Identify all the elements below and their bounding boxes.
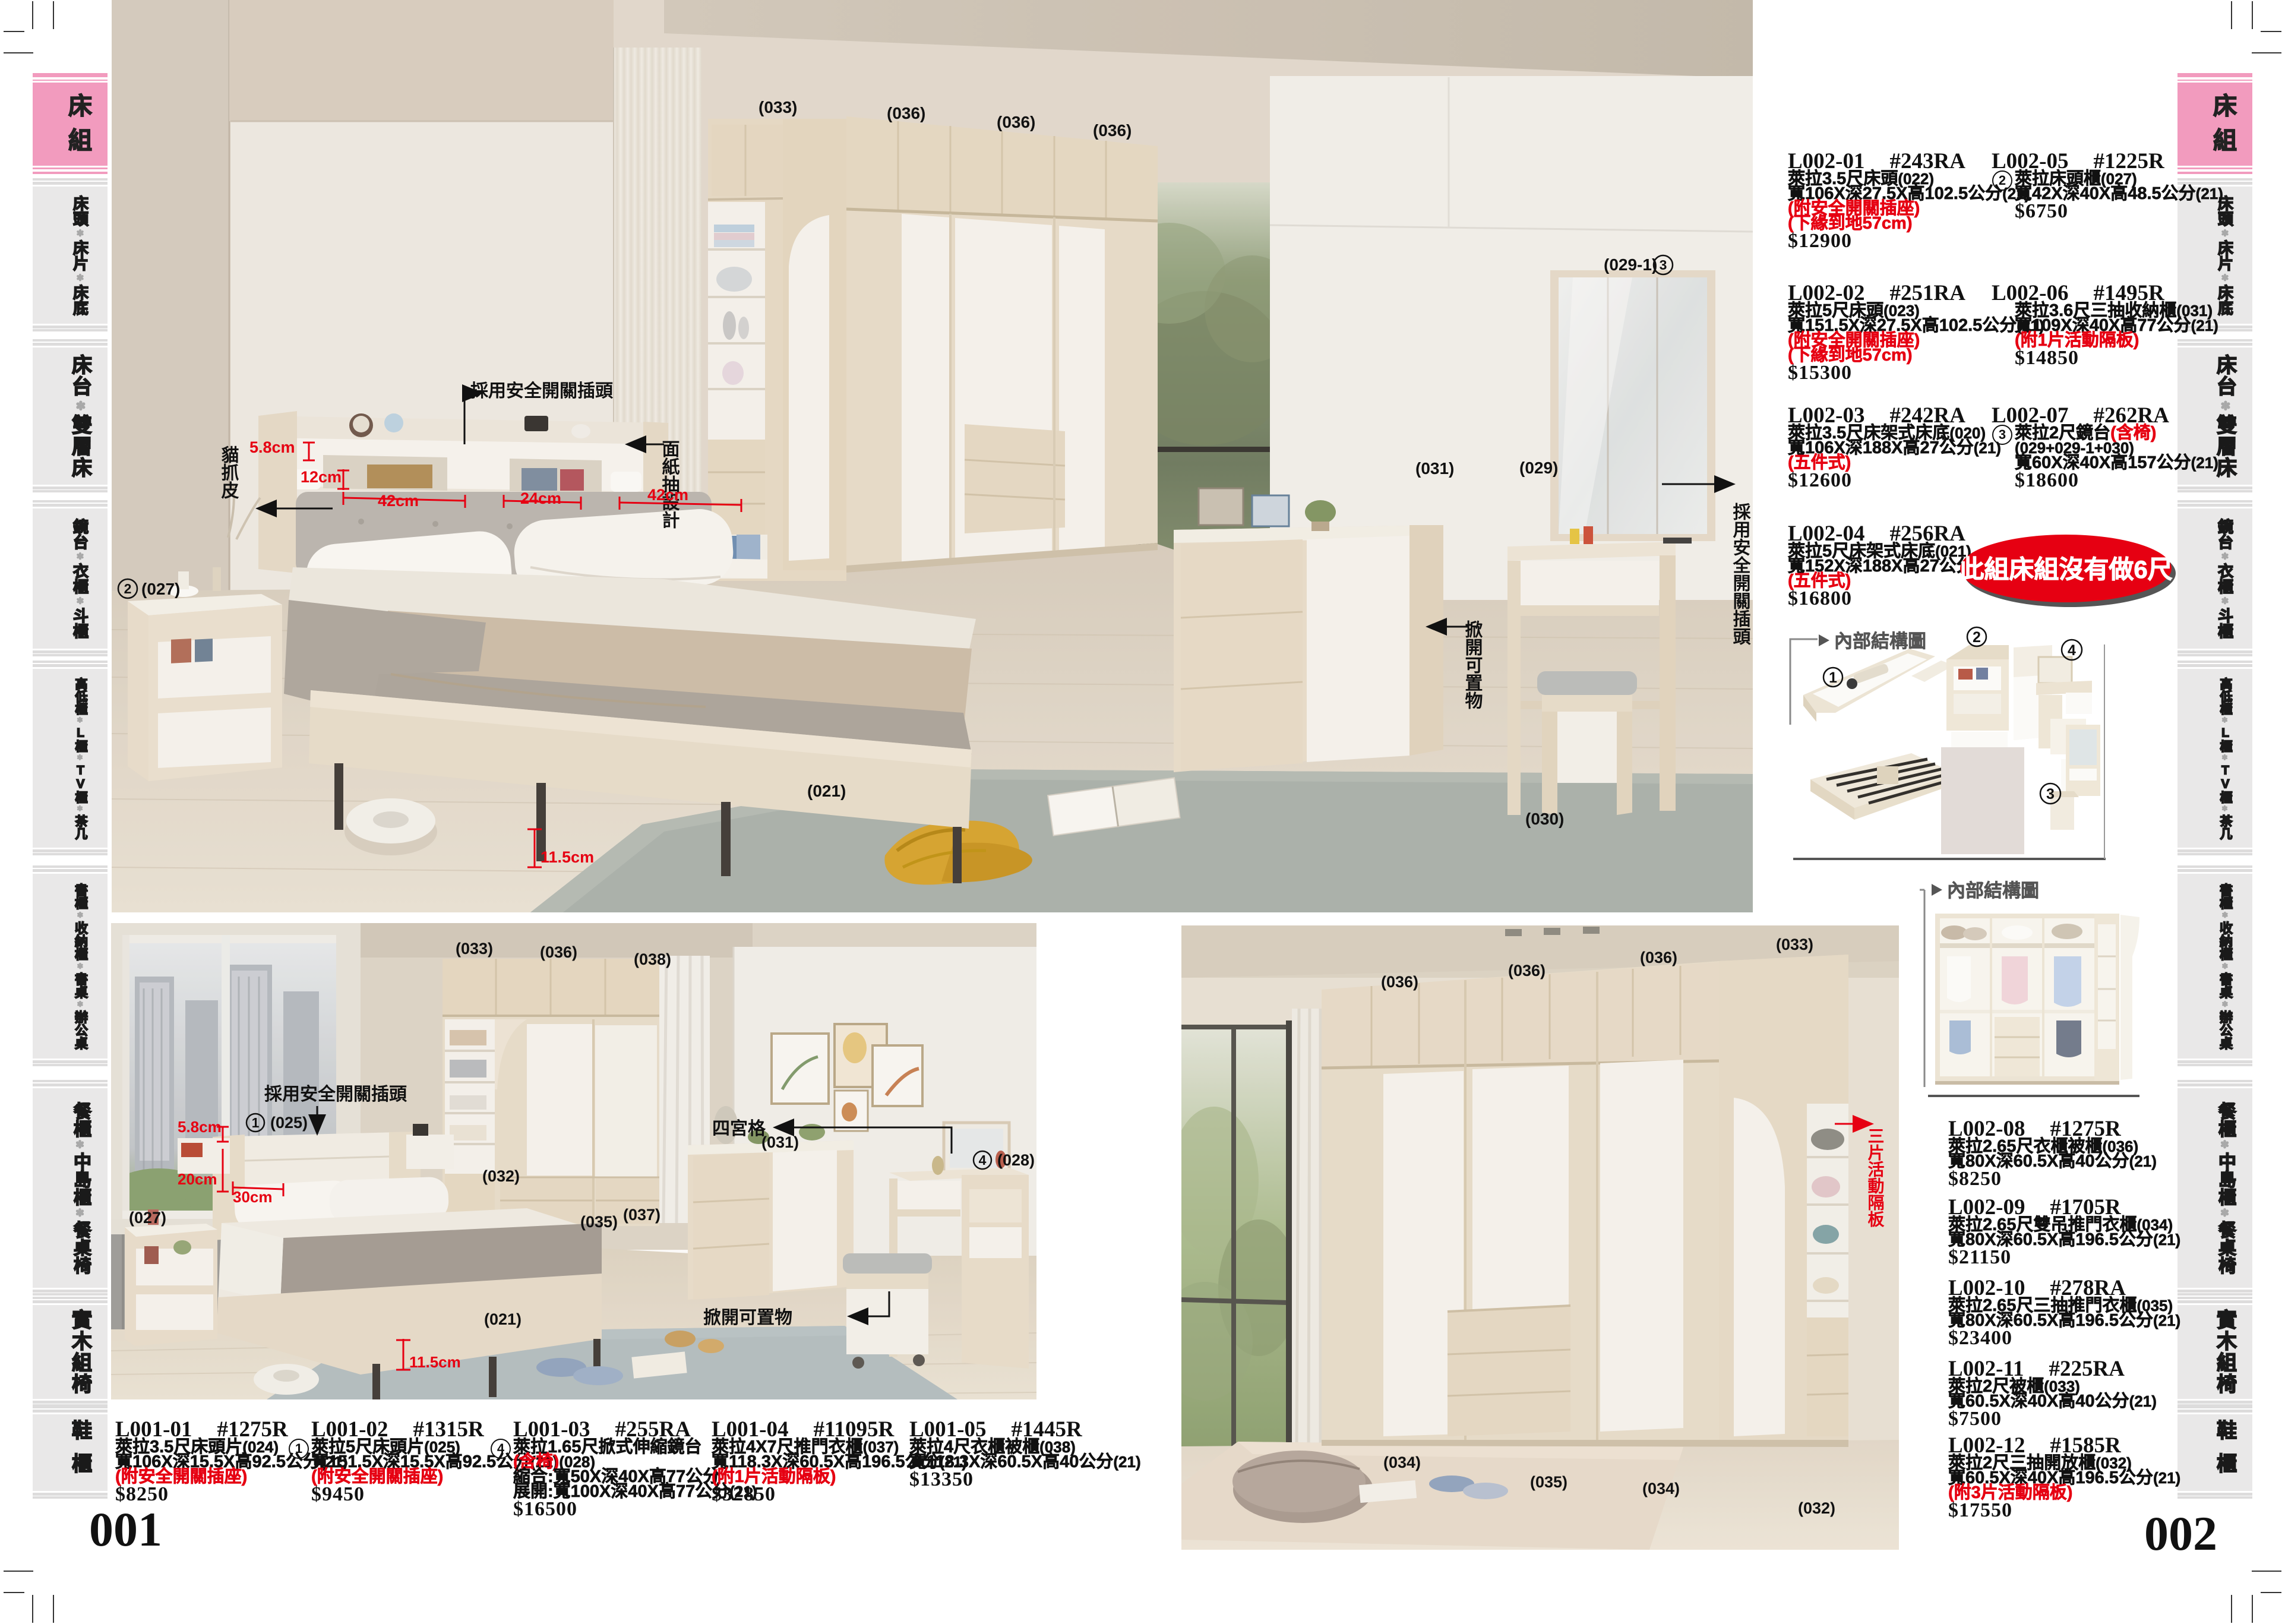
- svg-text:(028): (028): [997, 1151, 1035, 1169]
- svg-text:5.8cm: 5.8cm: [178, 1118, 222, 1136]
- svg-text:2: 2: [124, 581, 132, 596]
- svg-text:(034): (034): [1642, 1480, 1680, 1497]
- svg-text:(032): (032): [482, 1167, 520, 1185]
- svg-text:(035): (035): [580, 1213, 618, 1231]
- svg-text:內部結構圖: 內部結構圖: [1834, 631, 1926, 652]
- svg-text:內部結構圖: 內部結構圖: [1947, 880, 2039, 901]
- svg-text:1: 1: [252, 1115, 260, 1130]
- svg-text:採用安全開關插頭: 採用安全開關插頭: [470, 381, 614, 401]
- svg-text:(035): (035): [1530, 1473, 1567, 1491]
- svg-text:採用安全開關插頭: 採用安全開關插頭: [1730, 503, 1752, 645]
- svg-text:(036): (036): [997, 113, 1035, 131]
- svg-text:(027): (027): [129, 1209, 166, 1227]
- svg-text:4: 4: [2068, 642, 2076, 659]
- svg-text:(038): (038): [634, 950, 671, 968]
- svg-text:貓抓皮: 貓抓皮: [219, 446, 239, 499]
- svg-text:3: 3: [1660, 257, 1667, 273]
- svg-text:11.5cm: 11.5cm: [541, 848, 594, 866]
- svg-text:12cm: 12cm: [301, 468, 342, 486]
- svg-text:面紙抽設計: 面紙抽設計: [659, 440, 680, 529]
- svg-text:(037): (037): [623, 1206, 660, 1224]
- svg-text:(025): (025): [270, 1114, 308, 1132]
- svg-text:(030): (030): [1525, 810, 1564, 828]
- svg-text:此組床組沒有做6尺: 此組床組沒有做6尺: [1959, 555, 2172, 583]
- svg-text:(029): (029): [1519, 459, 1558, 477]
- svg-text:(031): (031): [1415, 459, 1454, 478]
- svg-text:(034): (034): [1383, 1454, 1421, 1471]
- svg-text:3: 3: [2046, 786, 2055, 802]
- svg-text:42cm: 42cm: [378, 492, 419, 510]
- svg-text:採用安全開關插頭: 採用安全開關插頭: [264, 1084, 407, 1104]
- svg-text:(036): (036): [540, 943, 577, 961]
- svg-text:11.5cm: 11.5cm: [409, 1353, 461, 1371]
- svg-text:(021): (021): [484, 1310, 522, 1328]
- svg-text:四宮格: 四宮格: [712, 1119, 766, 1139]
- svg-text:(036): (036): [1640, 949, 1677, 966]
- svg-text:(036): (036): [1093, 121, 1132, 140]
- svg-text:(036): (036): [887, 104, 925, 122]
- svg-text:(031): (031): [761, 1133, 799, 1151]
- svg-text:(032): (032): [1798, 1499, 1835, 1517]
- svg-text:4: 4: [979, 1152, 987, 1168]
- svg-text:(036): (036): [1381, 973, 1418, 991]
- svg-text:(033): (033): [456, 940, 493, 958]
- svg-text:30cm: 30cm: [233, 1188, 273, 1206]
- svg-text:掀開可置物: 掀開可置物: [1462, 620, 1483, 709]
- svg-text:1: 1: [1829, 669, 1837, 686]
- svg-text:(033): (033): [1776, 936, 1813, 953]
- svg-text:(029-1): (029-1): [1604, 255, 1657, 274]
- svg-text:(027): (027): [141, 580, 180, 598]
- svg-text:42cm: 42cm: [647, 486, 688, 504]
- svg-text:24cm: 24cm: [520, 489, 561, 507]
- svg-text:20cm: 20cm: [178, 1170, 217, 1188]
- svg-text:5.8cm: 5.8cm: [249, 438, 295, 456]
- svg-text:(036): (036): [1508, 962, 1546, 980]
- svg-text:(033): (033): [758, 98, 797, 116]
- svg-text:三片活動隔板: 三片活動隔板: [1866, 1127, 1885, 1228]
- svg-text:2: 2: [1973, 629, 1981, 646]
- svg-text:(021): (021): [807, 782, 846, 800]
- svg-text:掀開可置物: 掀開可置物: [703, 1308, 792, 1328]
